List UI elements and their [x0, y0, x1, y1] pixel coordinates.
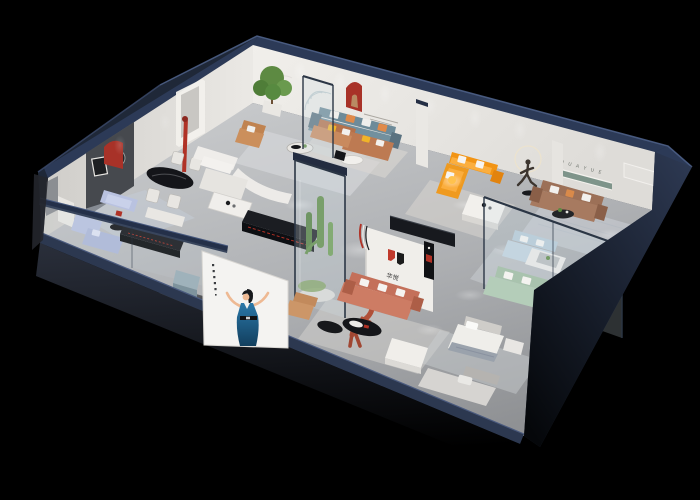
isometric-scene: H U A Y U E	[0, 0, 700, 500]
niche-figurine	[351, 95, 358, 109]
woman-head	[243, 294, 250, 301]
glass-panel-arcs	[303, 76, 333, 158]
glass-atrium	[293, 152, 347, 318]
woman-dress	[237, 303, 259, 346]
lit-table-lamp	[441, 174, 463, 188]
lamp-head	[182, 116, 188, 122]
showroom-render: H U A Y U E	[0, 0, 700, 500]
partition-1	[416, 99, 428, 168]
black-slot-shelf	[424, 241, 434, 280]
table-vase	[226, 201, 230, 205]
